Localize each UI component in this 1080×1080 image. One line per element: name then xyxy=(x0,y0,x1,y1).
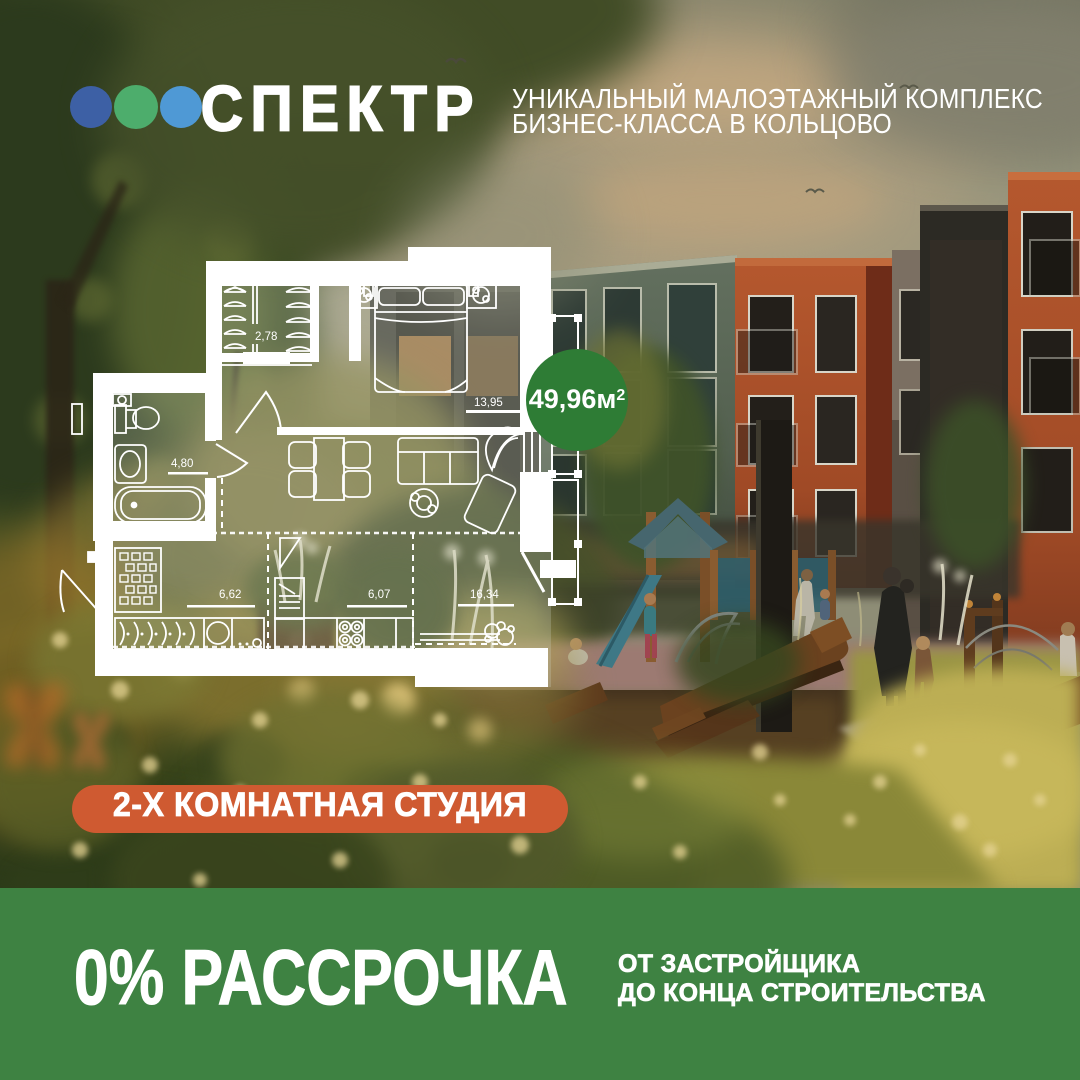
svg-text:4,80: 4,80 xyxy=(171,458,193,470)
svg-text:16,34: 16,34 xyxy=(470,589,499,601)
svg-text:6,62: 6,62 xyxy=(219,589,241,601)
svg-text:6,07: 6,07 xyxy=(368,589,390,601)
svg-text:2,78: 2,78 xyxy=(255,331,277,343)
svg-text:13,95: 13,95 xyxy=(474,397,503,409)
